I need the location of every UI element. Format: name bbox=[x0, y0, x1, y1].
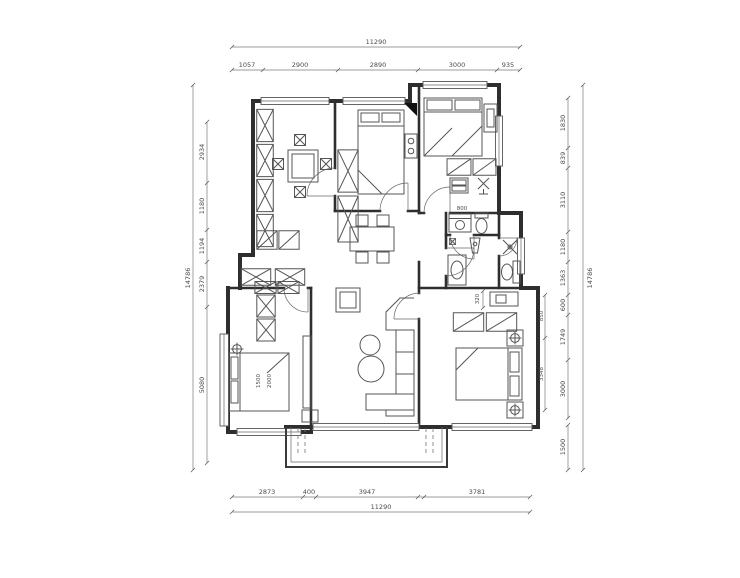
dim-bottom-seg: 2873 bbox=[259, 488, 276, 496]
dim-right-seg: 1180 bbox=[559, 239, 567, 256]
tea-table-icon bbox=[288, 150, 318, 182]
desk-icon bbox=[450, 178, 468, 193]
coffee-table-icon bbox=[358, 335, 384, 382]
window-small-bedroom-bottom bbox=[237, 429, 301, 436]
dim-laundry: 800 bbox=[457, 206, 468, 212]
dim-bottom-seg: 3947 bbox=[359, 488, 376, 496]
nightstand-icon bbox=[405, 134, 417, 158]
dim-left: 14786 2934 1180 1194 2379 5080 bbox=[184, 85, 207, 470]
floor-drain-icon bbox=[449, 238, 455, 244]
dim-bottom: 2873 400 3947 3781 11290 bbox=[232, 488, 530, 512]
sofa-icon bbox=[366, 298, 414, 416]
wardrobe-icon bbox=[257, 295, 275, 341]
dim-small-bed-length: 2000 bbox=[267, 374, 273, 388]
door-master-bedroom bbox=[394, 293, 420, 319]
chair-icon bbox=[272, 158, 283, 169]
chair-icon bbox=[294, 186, 305, 197]
toilet-icon bbox=[475, 213, 488, 234]
dim-top: 11290 1057 2900 2890 3000 935 bbox=[232, 38, 520, 70]
nightstand-icon bbox=[484, 104, 497, 132]
nightstand-icon bbox=[507, 402, 523, 418]
dim-left-seg: 1194 bbox=[198, 238, 206, 255]
dim-left-total: 14786 bbox=[184, 268, 192, 289]
dim-bottom-seg: 400 bbox=[303, 488, 315, 496]
side-table-icon bbox=[336, 288, 360, 312]
dim-left-seg: 2379 bbox=[198, 276, 206, 293]
window-master-bottom bbox=[452, 424, 532, 431]
bedroom-right-furniture bbox=[424, 98, 497, 194]
dim-left-seg: 1180 bbox=[198, 198, 206, 215]
dim-master-bed-length: 3348 bbox=[539, 367, 545, 381]
window-mid-bedroom-top bbox=[343, 98, 405, 105]
living-room-furniture bbox=[336, 215, 414, 416]
walls-interior bbox=[228, 85, 538, 432]
nightstand-icon bbox=[507, 330, 523, 346]
window-kitchen-top bbox=[261, 98, 329, 105]
window-right-bedroom-top bbox=[423, 82, 487, 89]
master-bedroom-furniture bbox=[453, 292, 523, 418]
washing-machine-icon bbox=[449, 214, 471, 232]
window-living-balcony-door bbox=[313, 424, 419, 431]
door-right-bedroom bbox=[424, 187, 450, 213]
bathroom-fixtures bbox=[448, 213, 520, 285]
chair-icon bbox=[320, 158, 331, 169]
dim-right-seg: 1749 bbox=[559, 329, 567, 346]
dim-top-seg: 1057 bbox=[239, 61, 256, 69]
dim-left-seg: 2934 bbox=[198, 144, 206, 161]
dim-right-balcony: 1500 bbox=[559, 439, 567, 456]
bed-icon bbox=[456, 348, 522, 400]
dim-top-seg: 2900 bbox=[292, 61, 309, 69]
dim-small-bed-width: 1500 bbox=[256, 374, 262, 388]
dim-top-seg: 3000 bbox=[449, 61, 466, 69]
dim-right-seg: 1363 bbox=[559, 270, 567, 287]
small-bedroom-furniture bbox=[229, 282, 318, 422]
dim-right-seg: 1830 bbox=[559, 115, 567, 132]
dim-right-seg: 3000 bbox=[559, 381, 567, 398]
pantry-cabinet-icon bbox=[257, 109, 274, 246]
floor-plan-page: 11290 1057 2900 2890 3000 935 2873 400 3… bbox=[0, 0, 740, 578]
bed-icon bbox=[358, 110, 404, 194]
dim-top-total: 11290 bbox=[366, 38, 387, 46]
chair-icon bbox=[294, 134, 305, 145]
doors bbox=[284, 168, 517, 319]
dim-right-seg: 3110 bbox=[559, 192, 567, 209]
chair-icon bbox=[478, 178, 489, 194]
dim-right-total: 14786 bbox=[586, 268, 594, 289]
dim-left-seg: 5080 bbox=[198, 377, 206, 394]
walls-exterior bbox=[228, 85, 538, 432]
bay-window bbox=[220, 334, 229, 426]
wardrobe-icon bbox=[338, 150, 358, 242]
bed-icon bbox=[424, 98, 482, 156]
dim-master-desk: 320 bbox=[475, 293, 481, 304]
wardrobe-icon bbox=[453, 313, 516, 331]
dim-right-seg: 600 bbox=[559, 299, 567, 311]
dim-right: 1830 839 3110 1180 1363 600 1749 3000 15… bbox=[559, 85, 594, 470]
dim-master-bed-side: 850 bbox=[539, 310, 545, 321]
dim-top-seg: 935 bbox=[502, 61, 514, 69]
dim-bottom-total: 11290 bbox=[371, 503, 392, 511]
window-wc-side bbox=[518, 238, 525, 274]
urinal-icon bbox=[470, 238, 480, 253]
dim-top-seg: 2890 bbox=[370, 61, 387, 69]
wardrobe-icon bbox=[447, 159, 496, 176]
desk-icon bbox=[490, 292, 518, 306]
sink-icon bbox=[448, 255, 466, 285]
tv-icon bbox=[404, 103, 417, 116]
dim-right-seg: 839 bbox=[559, 152, 567, 164]
floor-plan-svg: 11290 1057 2900 2890 3000 935 2873 400 3… bbox=[0, 0, 740, 578]
dim-bottom-seg: 3781 bbox=[469, 488, 486, 496]
